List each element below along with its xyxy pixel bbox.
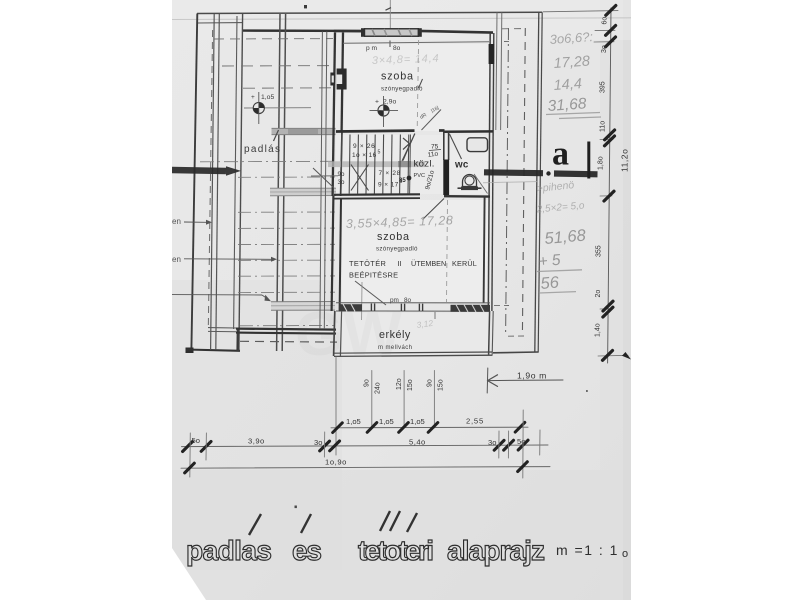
svg-text:11o: 11o	[427, 151, 439, 159]
svg-text:3o: 3o	[601, 45, 608, 53]
svg-text:9 × 17: 9 × 17	[378, 182, 399, 189]
svg-text:szoba: szoba	[381, 71, 414, 83]
svg-text:9o: 9o	[364, 379, 371, 387]
svg-text:wc: wc	[454, 160, 469, 171]
svg-text:+: +	[251, 94, 255, 101]
svg-text:közl.: közl.	[414, 159, 435, 170]
svg-text:9o: 9o	[427, 379, 434, 387]
svg-text:9o: 9o	[338, 171, 345, 178]
svg-text:5: 5	[400, 179, 403, 185]
svg-text:51,68: 51,68	[544, 226, 588, 248]
svg-text:KERÜL: KERÜL	[452, 259, 477, 268]
svg-text:8o: 8o	[393, 45, 401, 52]
svg-text:ÜTEMBEN: ÜTEMBEN	[411, 259, 446, 268]
svg-text:II: II	[398, 259, 402, 268]
svg-text:56: 56	[540, 273, 561, 293]
svg-text:1,o5: 1,o5	[346, 417, 361, 426]
svg-text:11,2o: 11,2o	[620, 149, 630, 172]
svg-text:1,o5: 1,o5	[379, 417, 394, 426]
svg-text:12o: 12o	[396, 378, 403, 390]
svg-text:3×4,8= 14,4: 3×4,8= 14,4	[372, 53, 440, 67]
svg-text:5: 5	[378, 150, 381, 156]
svg-text:5o: 5o	[517, 437, 525, 446]
svg-text:1,o5: 1,o5	[410, 417, 425, 426]
svg-text:szoba: szoba	[377, 231, 410, 243]
svg-text:1,8o: 1,8o	[598, 156, 605, 170]
svg-text:3,9o: 3,9o	[248, 437, 265, 446]
svg-text:p m: p m	[366, 45, 377, 52]
svg-text:355: 355	[596, 245, 603, 257]
svg-text:es: es	[292, 535, 322, 566]
svg-text:2,9o: 2,9o	[383, 99, 396, 106]
svg-text:14,4: 14,4	[553, 76, 582, 94]
svg-text:3o: 3o	[314, 438, 322, 447]
svg-text:szónyegpadló: szónyegpadló	[381, 86, 423, 93]
svg-text:1,4o: 1,4o	[595, 323, 602, 337]
svg-text:alaprajz: alaprajz	[447, 535, 545, 566]
svg-text:a: a	[552, 136, 569, 173]
svg-text:tetoteri: tetoteri	[358, 535, 434, 566]
svg-text:3o: 3o	[488, 438, 496, 447]
svg-text:padlás: padlás	[244, 144, 281, 155]
svg-text:7 × 28: 7 × 28	[379, 170, 401, 177]
svg-text:en: en	[172, 255, 181, 264]
svg-text:1,o5: 1,o5	[261, 94, 274, 101]
svg-text:9 × 26: 9 × 26	[353, 143, 375, 150]
svg-text:3o6,6?:: 3o6,6?:	[549, 29, 594, 47]
svg-text:GW: GW	[295, 300, 402, 369]
svg-text:o: o	[622, 548, 628, 560]
svg-text:24o: 24o	[375, 382, 382, 394]
svg-text:BEÉPITÉSRE: BEÉPITÉSRE	[349, 271, 398, 280]
svg-text:+: +	[375, 99, 379, 106]
svg-text:395: 395	[600, 81, 607, 93]
svg-text:15o: 15o	[407, 379, 414, 391]
svg-text:+ 5: + 5	[538, 252, 562, 271]
svg-text:5,4o: 5,4o	[409, 438, 426, 447]
svg-text:31,68: 31,68	[547, 95, 587, 115]
svg-text:szónyegpadló: szónyegpadló	[376, 246, 418, 253]
svg-text:5o: 5o	[192, 436, 200, 445]
svg-text:6o: 6o	[602, 17, 609, 25]
svg-text:1,9o m: 1,9o m	[517, 371, 547, 381]
svg-text:11o: 11o	[600, 121, 607, 132]
svg-text:8o: 8o	[404, 297, 412, 304]
svg-text:en: en	[172, 217, 181, 226]
svg-text:17,28: 17,28	[553, 53, 590, 71]
svg-text:2o: 2o	[595, 290, 602, 298]
svg-text:padlas: padlas	[186, 535, 272, 566]
svg-text:2,55: 2,55	[466, 417, 484, 426]
svg-text:15o: 15o	[438, 379, 445, 391]
svg-text:PVC: PVC	[414, 173, 426, 179]
svg-text:3o: 3o	[338, 179, 345, 186]
svg-text:m =1 : 1: m =1 : 1	[556, 542, 619, 558]
svg-text:1o × 16: 1o × 16	[352, 152, 377, 159]
svg-text:TETÖTÉR: TETÖTÉR	[349, 259, 386, 268]
svg-text:1o,9o: 1o,9o	[325, 458, 347, 467]
